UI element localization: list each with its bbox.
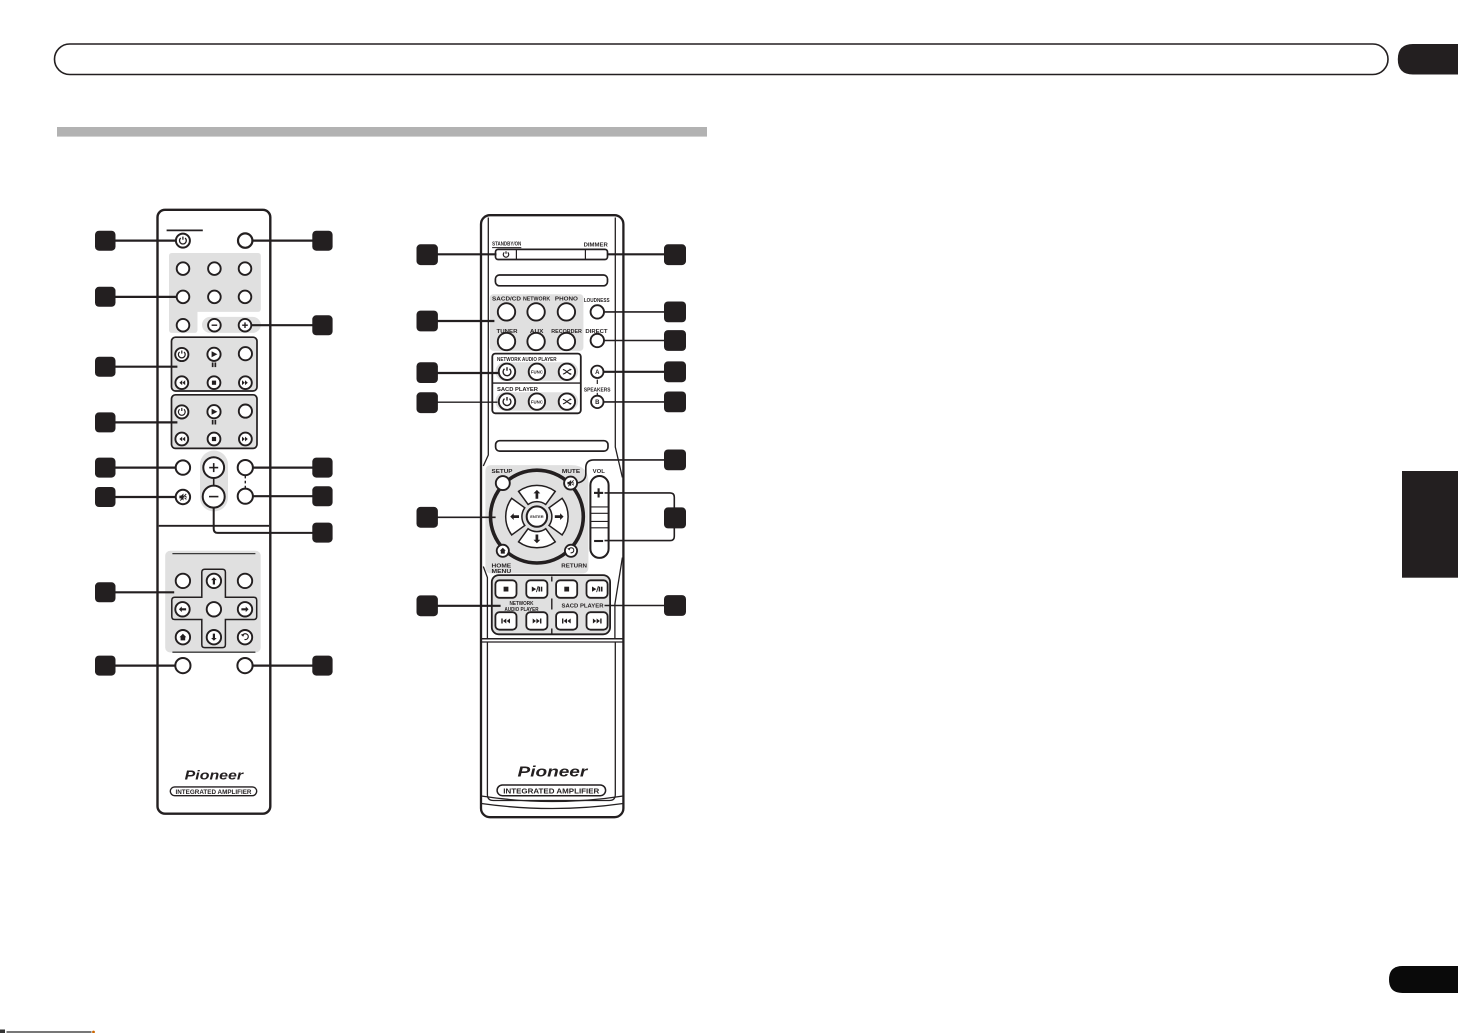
svg-text:B: B: [595, 400, 600, 406]
svg-text:SPEAKERS: SPEAKERS: [584, 387, 611, 393]
svg-text:NETWORK AUDIO PLAYER: NETWORK AUDIO PLAYER: [497, 357, 557, 363]
svg-text:NETWORK: NETWORK: [523, 297, 550, 303]
svg-text:VOL: VOL: [593, 469, 606, 475]
svg-text:SACD/CD: SACD/CD: [492, 297, 521, 303]
svg-text:INTEGRATED AMPLIFIER: INTEGRATED AMPLIFIER: [176, 789, 252, 796]
svg-text:MUTE: MUTE: [562, 469, 581, 475]
svg-text:PHONO: PHONO: [555, 297, 579, 303]
svg-text:Pioneer: Pioneer: [185, 768, 245, 782]
svg-text:Pioneer: Pioneer: [518, 764, 589, 781]
svg-text:ENTER: ENTER: [530, 514, 544, 519]
svg-text:INTEGRATED AMPLIFIER: INTEGRATED AMPLIFIER: [503, 786, 600, 795]
svg-text:STANDBY/ON: STANDBY/ON: [492, 242, 521, 248]
svg-text:SACD PLAYER: SACD PLAYER: [562, 603, 604, 609]
svg-text:DIMMER: DIMMER: [584, 242, 609, 248]
svg-text:FUNC: FUNC: [531, 399, 544, 404]
svg-text:RETURN: RETURN: [561, 563, 587, 569]
svg-text:FUNC: FUNC: [531, 370, 544, 375]
svg-text:A: A: [595, 370, 600, 376]
svg-text:NETWORK: NETWORK: [510, 601, 534, 607]
svg-text:SACD PLAYER: SACD PLAYER: [497, 387, 538, 393]
svg-text:LOUDNESS: LOUDNESS: [584, 298, 610, 304]
svg-text:SETUP: SETUP: [492, 469, 513, 475]
